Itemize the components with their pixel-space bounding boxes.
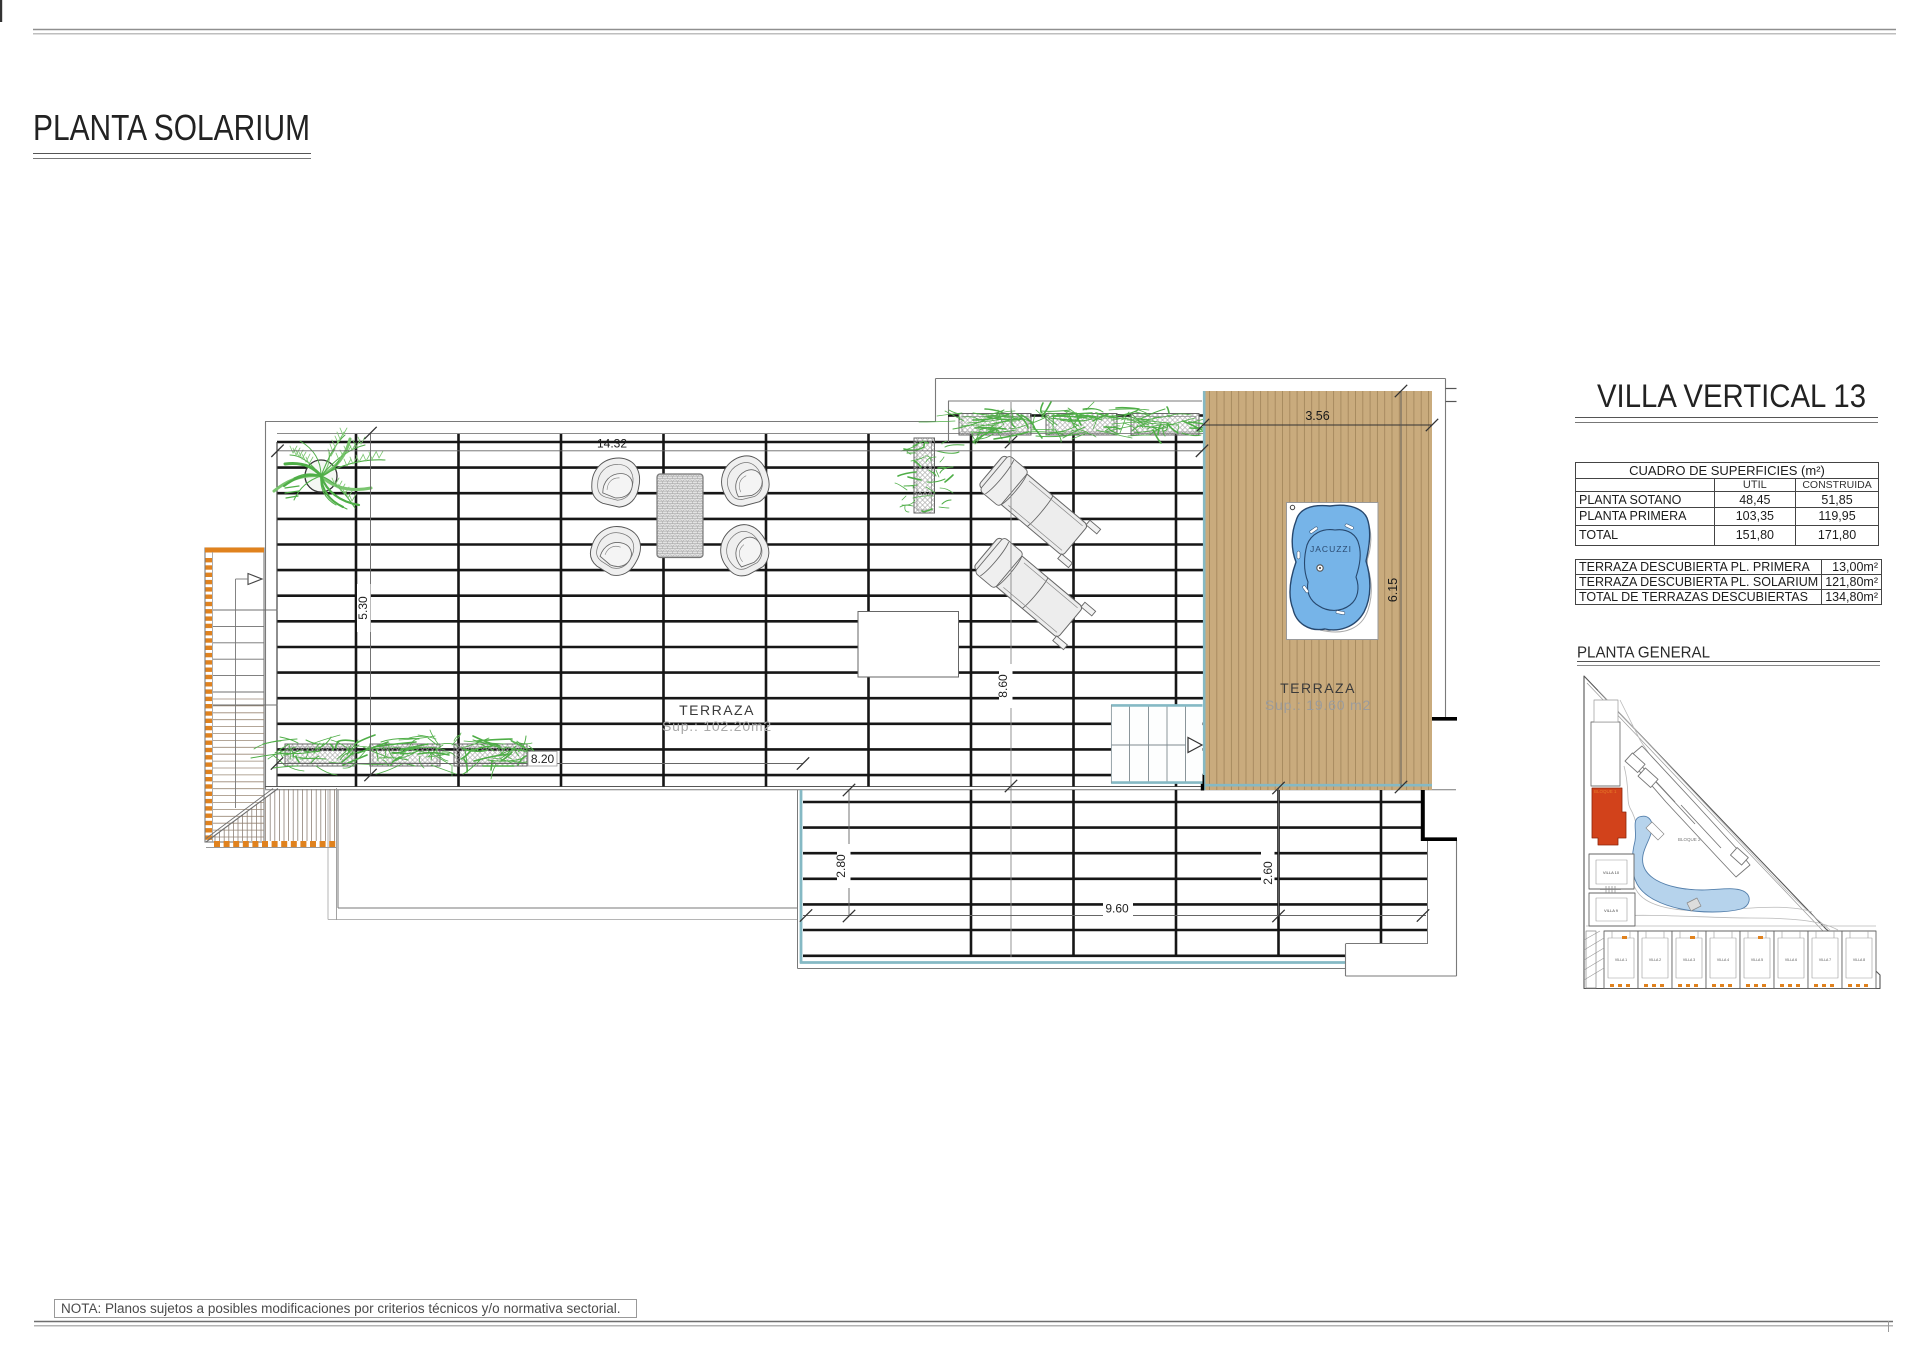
svg-text:VILLA 10: VILLA 10 [1603, 870, 1620, 875]
svg-text:VILLA 5: VILLA 5 [1751, 958, 1763, 962]
svg-text:VILLA 1: VILLA 1 [1615, 958, 1627, 962]
svg-text:TERRAZA: TERRAZA [1280, 680, 1356, 696]
svg-text:VILLA 6: VILLA 6 [1785, 958, 1797, 962]
svg-text:PLANTA GENERAL: PLANTA GENERAL [1577, 645, 1710, 662]
svg-text:2.80: 2.80 [834, 854, 848, 878]
svg-text:VILLA 2: VILLA 2 [1649, 958, 1661, 962]
svg-text:3.56: 3.56 [1305, 409, 1329, 423]
svg-text:BLOQUE 2: BLOQUE 2 [1678, 837, 1701, 842]
svg-text:Sup.: 19.60 m2: Sup.: 19.60 m2 [1265, 697, 1371, 713]
svg-text:PLANTA SOLARIUM: PLANTA SOLARIUM [33, 107, 310, 148]
svg-text:5.30: 5.30 [356, 596, 370, 620]
svg-text:VILLA 9: VILLA 9 [1604, 908, 1619, 913]
svg-text:BLOQUE 1: BLOQUE 1 [1594, 789, 1617, 794]
svg-text:Sup.: 102.20m2: Sup.: 102.20m2 [662, 718, 772, 734]
svg-text:2.60: 2.60 [1261, 861, 1275, 885]
svg-text:VILLA VERTICAL 13: VILLA VERTICAL 13 [1597, 378, 1866, 414]
svg-text:14.32: 14.32 [597, 437, 627, 451]
svg-text:VILLA 8: VILLA 8 [1853, 958, 1865, 962]
svg-text:6.15: 6.15 [1386, 578, 1400, 602]
svg-text:9.60: 9.60 [1105, 902, 1129, 916]
svg-text:8.20: 8.20 [531, 752, 555, 766]
svg-text:TERRAZA: TERRAZA [679, 702, 755, 718]
svg-text:VILLA 4: VILLA 4 [1717, 958, 1729, 962]
svg-text:8.60: 8.60 [996, 674, 1010, 698]
svg-text:VILLA 7: VILLA 7 [1819, 958, 1831, 962]
svg-text:VILLA 3: VILLA 3 [1683, 958, 1695, 962]
svg-text:JACUZZI: JACUZZI [1310, 544, 1352, 554]
